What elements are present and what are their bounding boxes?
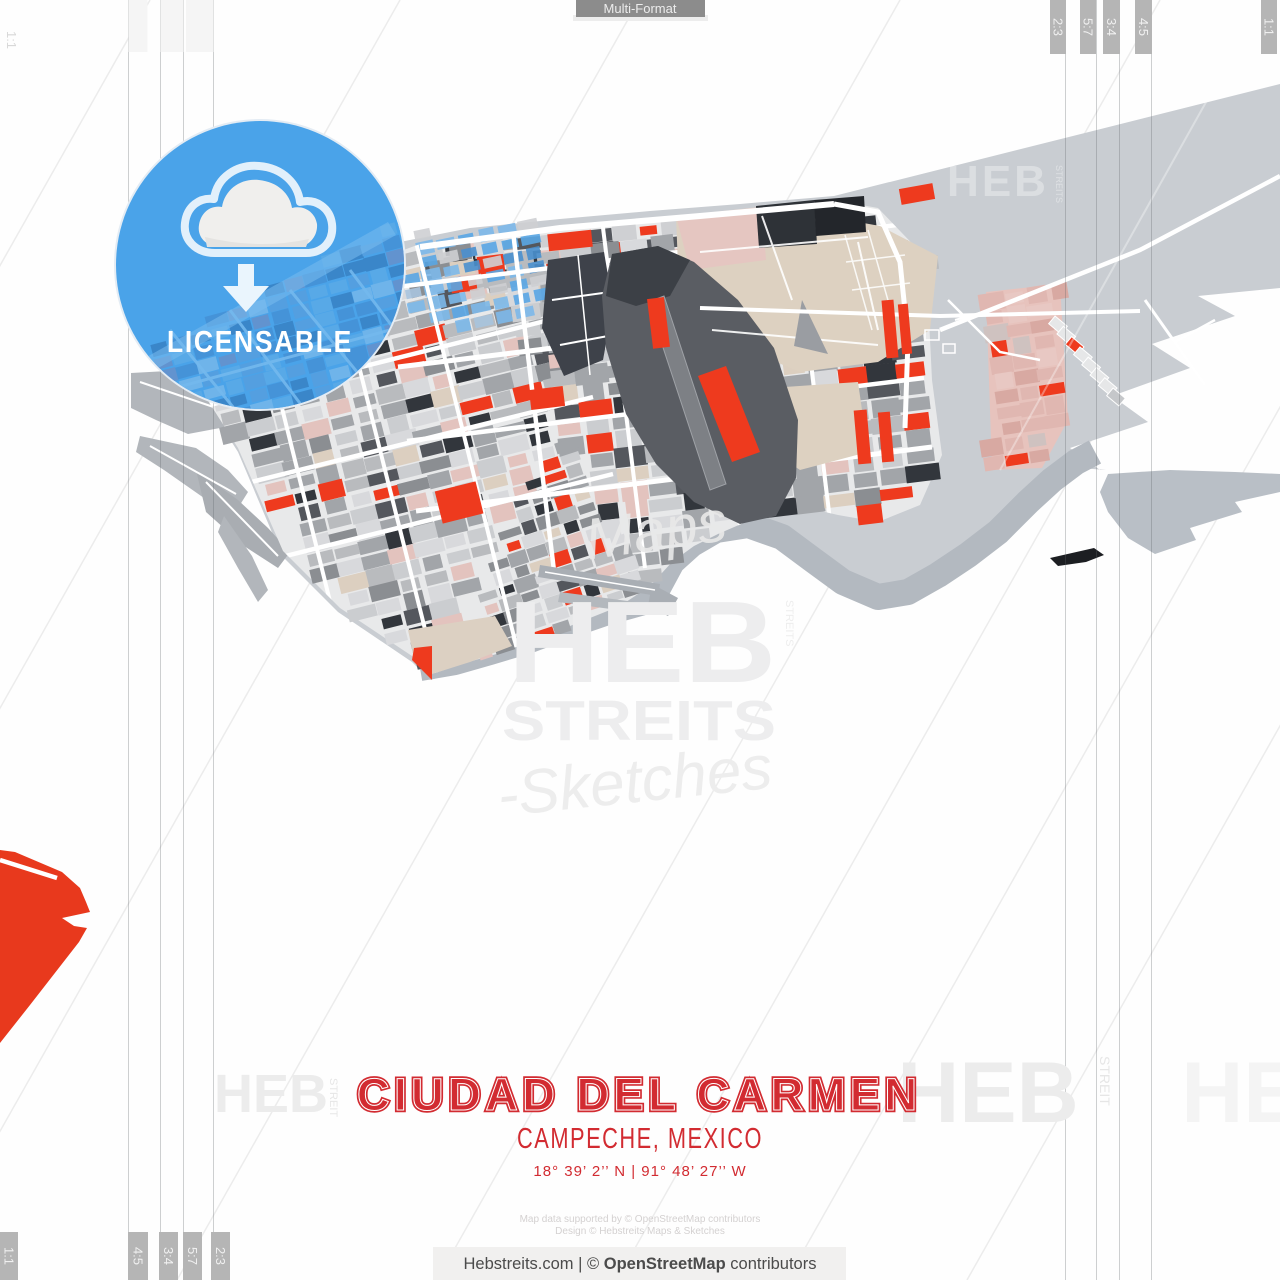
svg-text:HEB: HEB bbox=[214, 1064, 328, 1124]
svg-text:Map data supported by © OpenSt: Map data supported by © OpenStreetMap co… bbox=[520, 1214, 761, 1225]
svg-text:Design © Hebstreits Maps & Ske: Design © Hebstreits Maps & Sketches bbox=[555, 1226, 725, 1237]
svg-text:2:3: 2:3 bbox=[213, 1247, 228, 1265]
svg-text:HEB: HEB bbox=[947, 157, 1049, 206]
svg-text:3:4: 3:4 bbox=[161, 1247, 176, 1265]
svg-text:STREIT: STREIT bbox=[327, 1078, 339, 1117]
svg-text:LICENSABLE: LICENSABLE bbox=[167, 324, 353, 359]
svg-text:3:4: 3:4 bbox=[1104, 18, 1119, 36]
svg-text:CAMPECHE, MEXICO: CAMPECHE, MEXICO bbox=[517, 1123, 763, 1155]
svg-text:HEB: HEB bbox=[1181, 1045, 1280, 1141]
svg-text:1:1: 1:1 bbox=[2, 1247, 17, 1265]
svg-text:CIUDAD DEL CARMEN: CIUDAD DEL CARMEN bbox=[357, 1069, 923, 1120]
svg-text:1:1: 1:1 bbox=[4, 31, 19, 49]
svg-text:4:5: 4:5 bbox=[1136, 18, 1151, 36]
svg-text:18° 39’ 2’’ N | 91° 48’: 18° 39’ 2’’ N | 91° 48’ 27’’ W bbox=[533, 1163, 746, 1180]
svg-text:HEB: HEB bbox=[508, 577, 776, 707]
svg-text:STREITS: STREITS bbox=[1054, 165, 1064, 203]
svg-text:2:3: 2:3 bbox=[1051, 18, 1066, 36]
svg-text:4:5: 4:5 bbox=[131, 1247, 146, 1265]
svg-text:1:1: 1:1 bbox=[1262, 18, 1277, 36]
svg-text:Hebstreits.com | © OpenStreetM: Hebstreits.com | © OpenStreetMap contrib… bbox=[464, 1255, 817, 1273]
svg-text:STREITS: STREITS bbox=[783, 600, 795, 646]
svg-text:5:7: 5:7 bbox=[1081, 18, 1096, 36]
svg-text:HEB: HEB bbox=[897, 1045, 1079, 1141]
svg-text:5:7: 5:7 bbox=[185, 1247, 200, 1265]
svg-text:Multi-Format: Multi-Format bbox=[604, 1, 677, 16]
svg-text:STREIT: STREIT bbox=[1097, 1056, 1113, 1106]
